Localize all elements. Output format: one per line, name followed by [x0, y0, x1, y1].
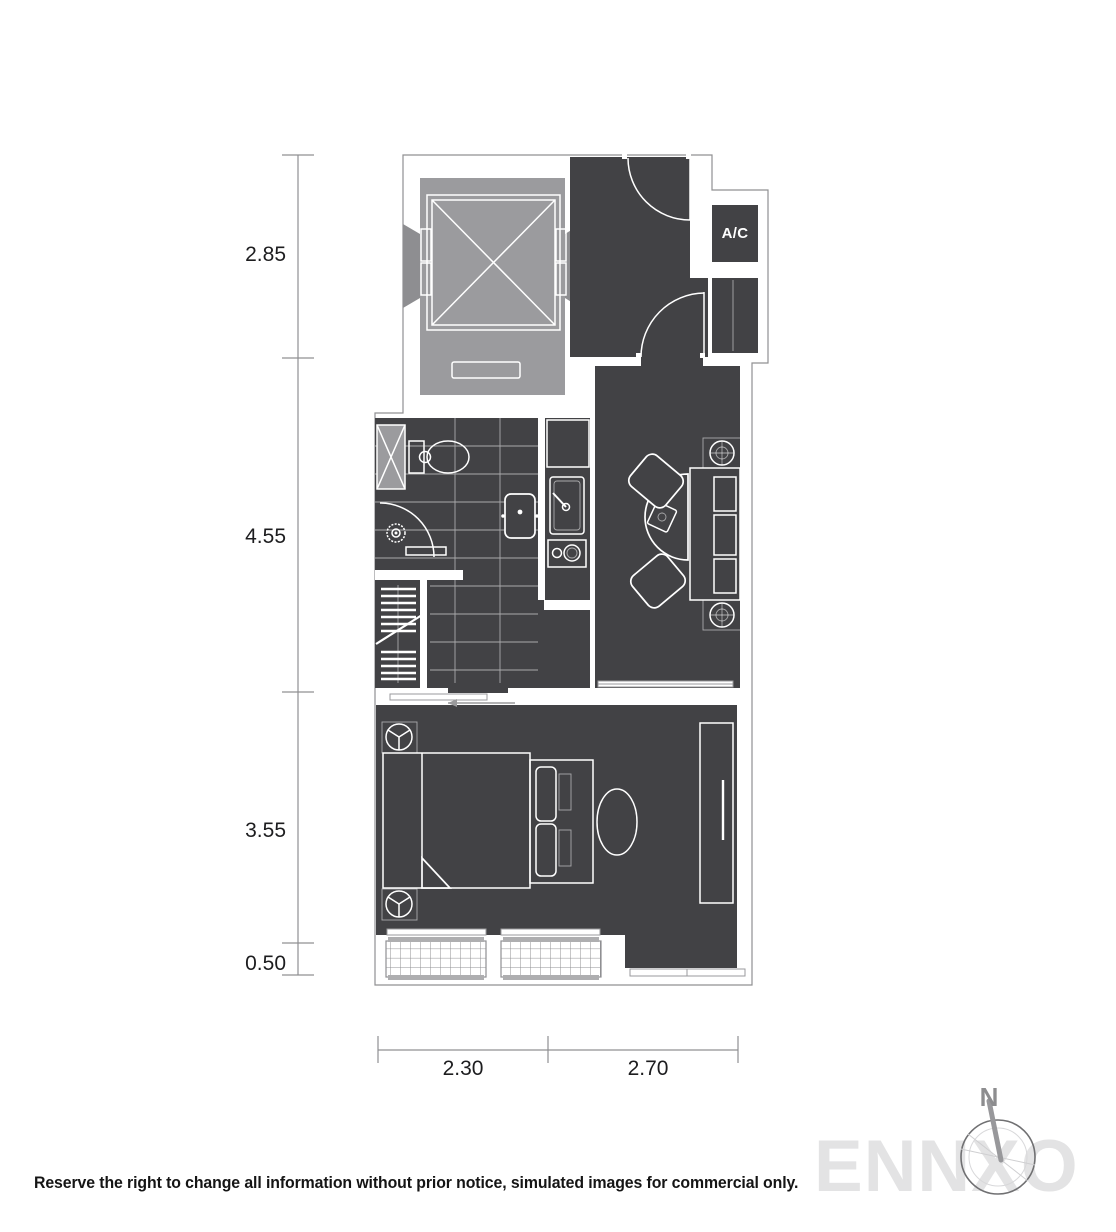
living-dining	[595, 366, 741, 688]
living-bedroom-window	[598, 681, 733, 687]
compass-icon	[961, 1101, 1035, 1194]
condenser-grille	[386, 937, 486, 980]
entry-hall	[570, 154, 708, 367]
floor-plan-page: ENNXO	[0, 0, 1116, 1232]
door-panel	[501, 494, 539, 538]
kitchen-bath-zone	[375, 418, 590, 688]
duct-shaft	[377, 425, 405, 489]
dimension-label-vertical-2: 4.55	[186, 524, 286, 549]
ac-unit-label: A/C	[712, 205, 758, 262]
north-label: N	[974, 1082, 1004, 1113]
condenser-grille	[501, 937, 601, 980]
dimension-label-vertical-4: 0.50	[186, 951, 286, 976]
dimension-label-horizontal-2: 2.70	[603, 1056, 693, 1081]
balcony-railing	[630, 969, 745, 976]
dimension-label-horizontal-1: 2.30	[418, 1056, 508, 1081]
elevator-shaft	[403, 178, 584, 395]
disclaimer-text: Reserve the right to change all informat…	[34, 1174, 798, 1193]
dimension-label-vertical-3: 3.55	[186, 818, 286, 843]
dimension-label-vertical-1: 2.85	[186, 242, 286, 267]
floor-plan-svg	[0, 0, 1116, 1232]
vertical-dimension-line	[282, 155, 314, 975]
bedroom	[376, 683, 737, 968]
